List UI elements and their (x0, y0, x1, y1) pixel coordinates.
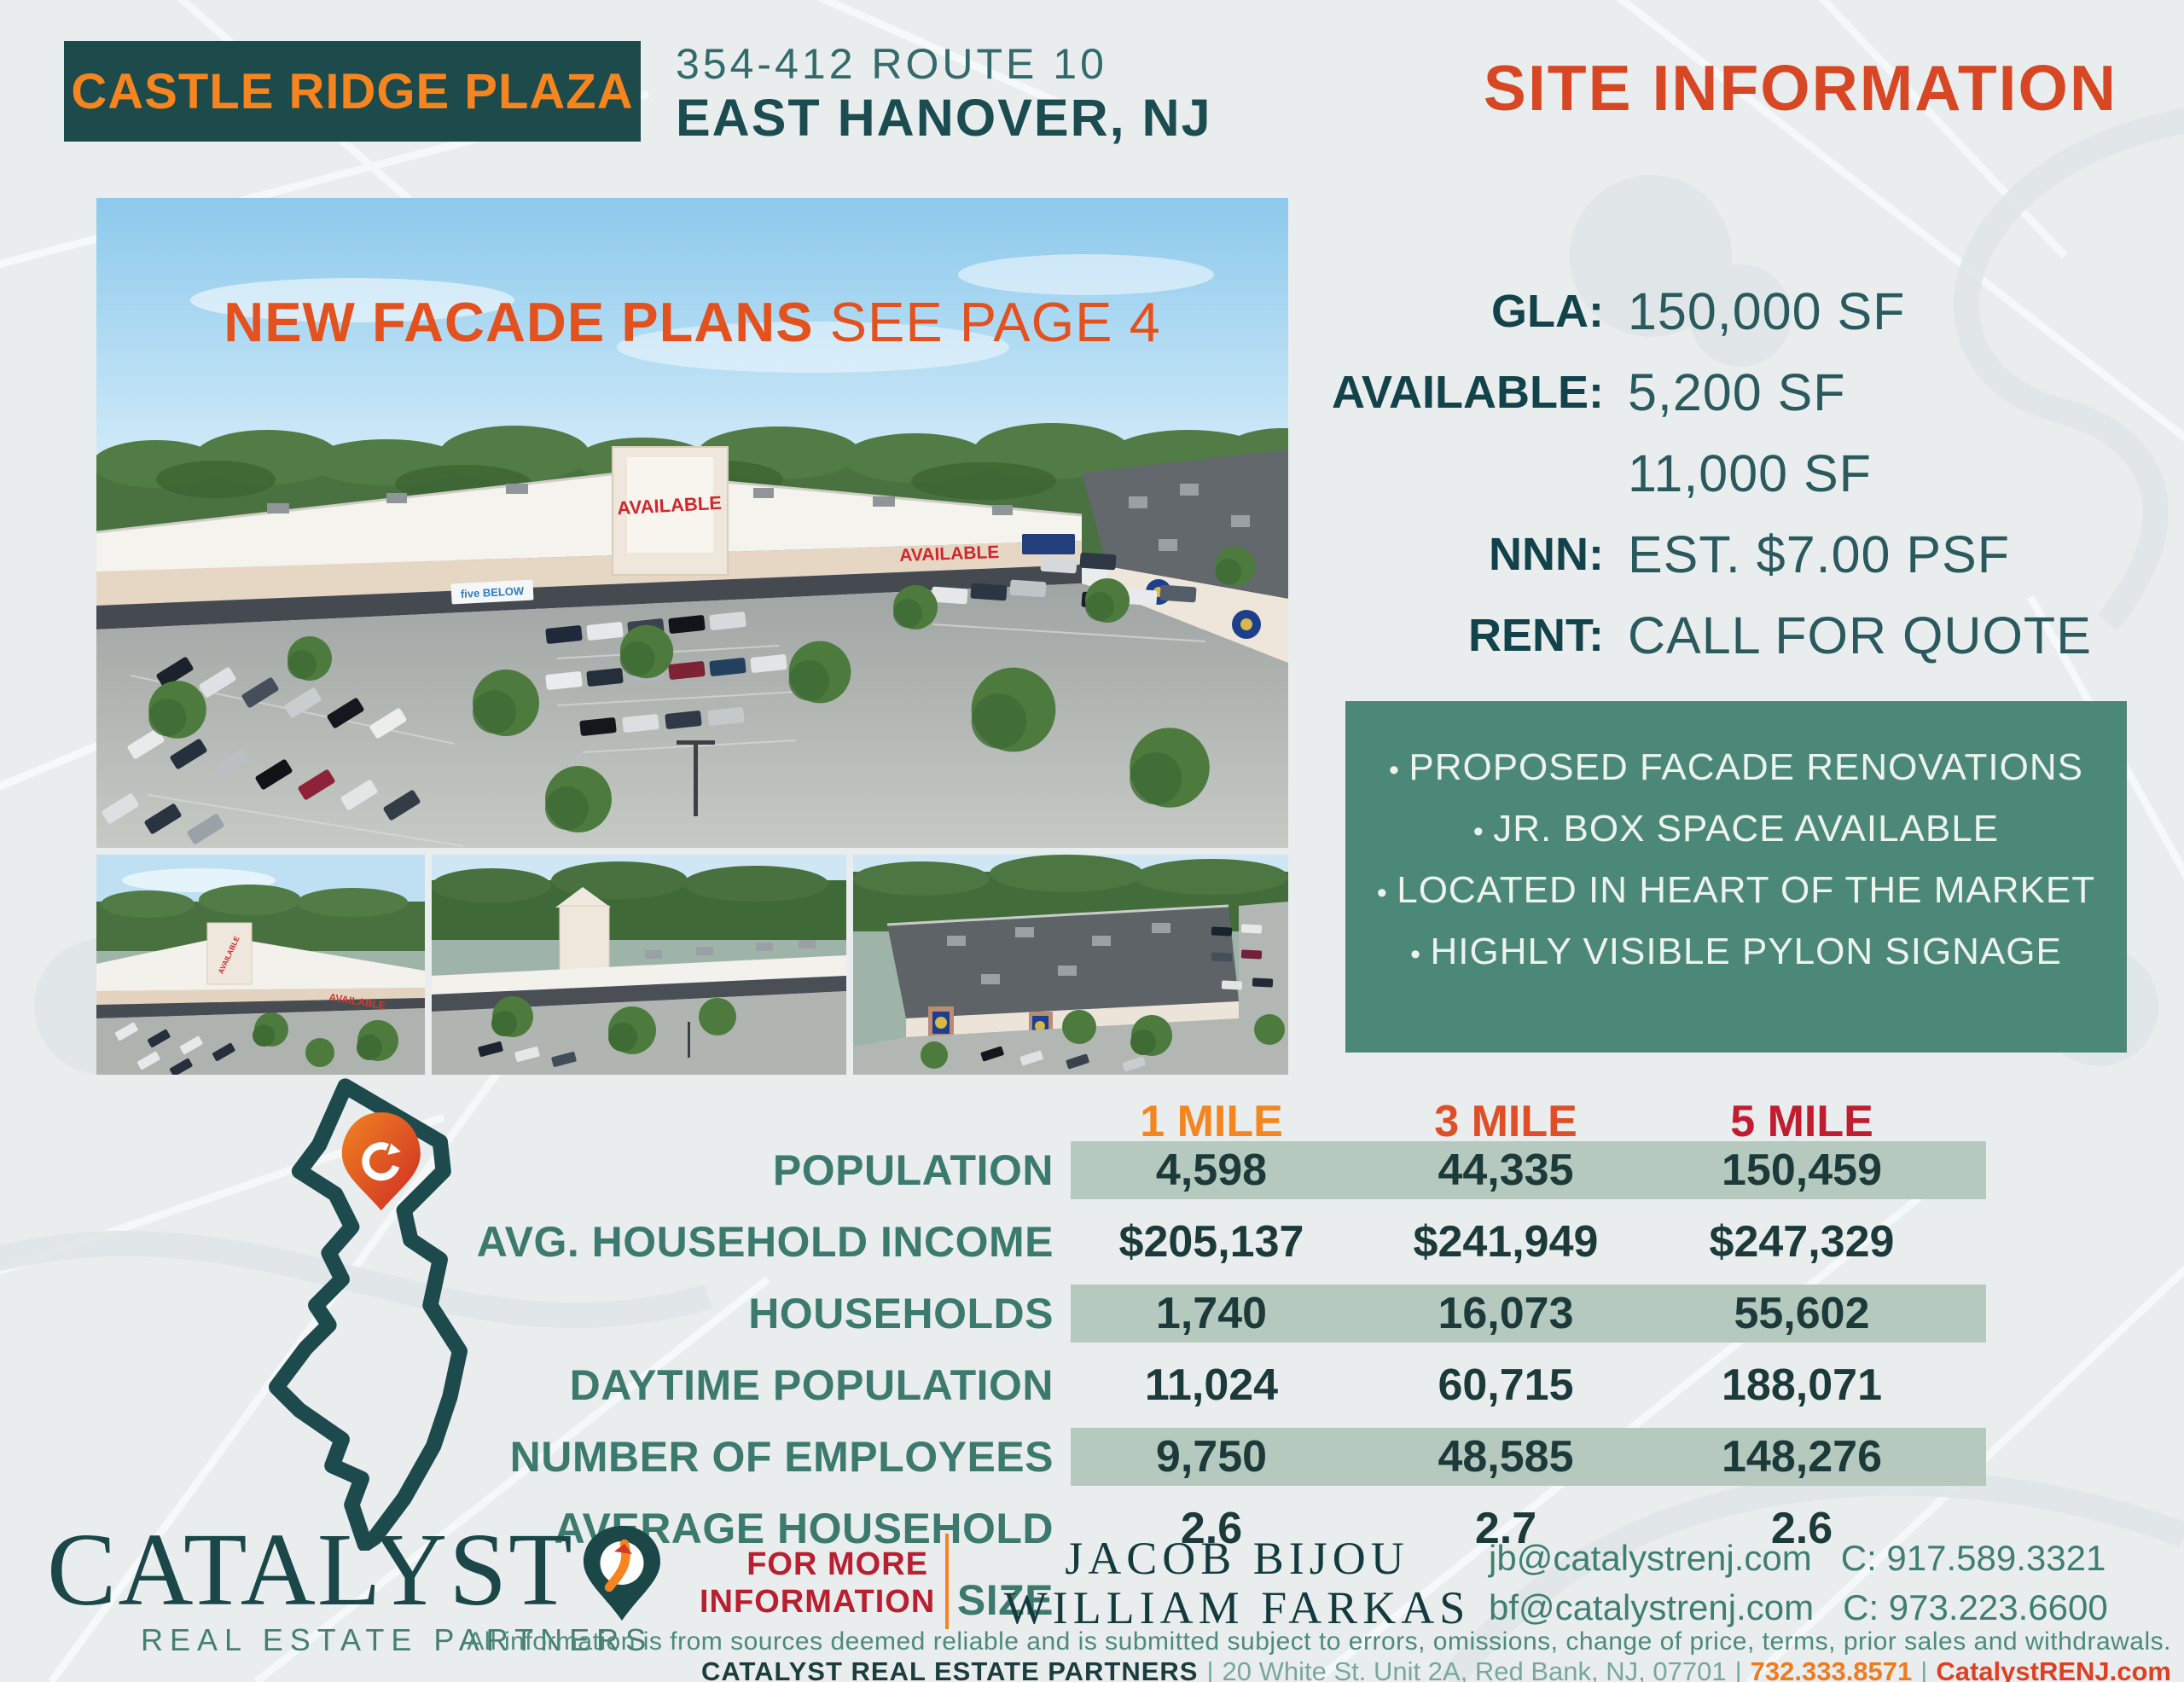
footer-divider (945, 1534, 949, 1629)
row-label: AVG. HOUSEHOLD INCOME (461, 1206, 1054, 1278)
company-website[interactable]: CatalystRENJ.com (1936, 1656, 2171, 1682)
cell-value: 48,585 (1365, 1421, 1647, 1493)
cell-value: 60,715 (1365, 1349, 1647, 1421)
highlight-pylon: HIGHLY VISIBLE PYLON SIGNAGE (1345, 921, 2127, 983)
contact-phone-1[interactable]: C: 917.589.3321 (1841, 1538, 2106, 1578)
company-address: 20 White St. Unit 2A, Red Bank, NJ, 0770… (1223, 1656, 1727, 1682)
cell-value: 150,459 (1661, 1134, 1943, 1206)
row-label: HOUSEHOLDS (461, 1278, 1054, 1349)
cell-value: 44,335 (1365, 1134, 1647, 1206)
row-label: POPULATION (461, 1134, 1054, 1206)
site-info-row-nnn: NNN:EST. $7.00 PSF (921, 514, 2167, 595)
for-more-information-label: FOR MORE INFORMATION (700, 1546, 928, 1621)
aerial-photo-thumb-3 (853, 855, 1288, 1075)
aerial-photo-thumb-2 (432, 855, 846, 1075)
property-address: 354-412 ROUTE 10 EAST HANOVER, NJ (676, 43, 1212, 144)
rent-label: RENT: (921, 595, 1604, 676)
cell-value: 188,071 (1661, 1349, 1943, 1421)
page-title: SITE INFORMATION (1484, 51, 2117, 125)
contact-email-1[interactable]: jb@catalystrenj.com (1489, 1538, 1812, 1578)
property-name: CASTLE RIDGE PLAZA (71, 63, 633, 120)
site-info-row-available: AVAILABLE:5,200 SF (921, 352, 2167, 433)
cell-value: 55,602 (1661, 1278, 1943, 1349)
separator: | (1920, 1656, 1927, 1682)
disclaimer-text: All information is from sources deemed r… (328, 1627, 2171, 1656)
highlight-jrbox: JR. BOX SPACE AVAILABLE (1345, 798, 2127, 860)
address-line1: 354-412 ROUTE 10 (676, 43, 1212, 85)
separator: | (1206, 1656, 1213, 1682)
gla-value: 150,000 SF (1628, 271, 1905, 352)
company-footer-line: CATALYST REAL ESTATE PARTNERS|20 White S… (701, 1656, 2171, 1682)
address-line2: EAST HANOVER, NJ (676, 92, 1212, 144)
rent-value: CALL FOR QUOTE (1628, 595, 2092, 676)
for-more-line1: FOR MORE (700, 1546, 928, 1583)
contact-info-2: bf@catalystrenj.comC: 973.223.6600 (1489, 1583, 2180, 1633)
row-label: NUMBER OF EMPLOYEES (461, 1421, 1054, 1493)
brand-name: CATALYST (47, 1523, 574, 1617)
highlight-facade: PROPOSED FACADE RENOVATIONS (1345, 737, 2127, 798)
contact-info-1: jb@catalystrenj.comC: 917.589.3321 (1489, 1534, 2180, 1583)
gla-label: GLA: (921, 271, 1604, 352)
cell-value: 9,750 (1071, 1421, 1352, 1493)
cell-value: $205,137 (1071, 1206, 1352, 1278)
cell-value: 16,073 (1365, 1278, 1647, 1349)
cell-value: 11,024 (1071, 1349, 1352, 1421)
site-info-row-available2: 11,000 SF (921, 433, 2167, 514)
cell-value: 1,740 (1071, 1278, 1352, 1349)
location-pin-arrow-icon (576, 1523, 668, 1635)
nnn-value: EST. $7.00 PSF (1628, 514, 2010, 595)
cell-value: $241,949 (1365, 1206, 1647, 1278)
available-value-1: 5,200 SF (1628, 352, 1846, 433)
company-phone[interactable]: 732.333.8571 (1751, 1656, 1913, 1682)
cell-value: 148,276 (1661, 1421, 1943, 1493)
nnn-label: NNN: (921, 514, 1604, 595)
row-label: DAYTIME POPULATION (461, 1349, 1054, 1421)
contact-name-1: JACOB BIJOU (981, 1534, 1493, 1583)
new-jersey-map (189, 1076, 527, 1555)
available-label: AVAILABLE: (921, 352, 1604, 433)
flyer-page: CASTLE RIDGE PLAZA 354-412 ROUTE 10 EAST… (0, 0, 2184, 1682)
available-value-2: 11,000 SF (1628, 433, 1872, 514)
cell-value: $247,329 (1661, 1206, 1943, 1278)
company-name: CATALYST REAL ESTATE PARTNERS (701, 1656, 1198, 1682)
property-title-banner: CASTLE RIDGE PLAZA (64, 41, 641, 142)
property-highlights-box: PROPOSED FACADE RENOVATIONS JR. BOX SPAC… (1345, 701, 2127, 1053)
contact-name-2: WILLIAM FARKAS (981, 1583, 1493, 1633)
for-more-line2: INFORMATION (700, 1583, 928, 1621)
contact-email-2[interactable]: bf@catalystrenj.com (1489, 1587, 1814, 1627)
cell-value: 4,598 (1071, 1134, 1352, 1206)
separator: | (1735, 1656, 1742, 1682)
contact-phone-2[interactable]: C: 973.223.6600 (1843, 1587, 2108, 1627)
site-info-row-gla: GLA:150,000 SF (921, 271, 2167, 352)
overlay-bold: NEW FACADE PLANS (224, 291, 813, 353)
highlight-market: LOCATED IN HEART OF THE MARKET (1345, 860, 2127, 921)
site-info-row-rent: RENT:CALL FOR QUOTE (921, 595, 2167, 676)
aerial-photo-thumb-1: AVAILABLE AVAILABLE (96, 855, 425, 1075)
brand-logo: CATALYST (47, 1523, 668, 1630)
